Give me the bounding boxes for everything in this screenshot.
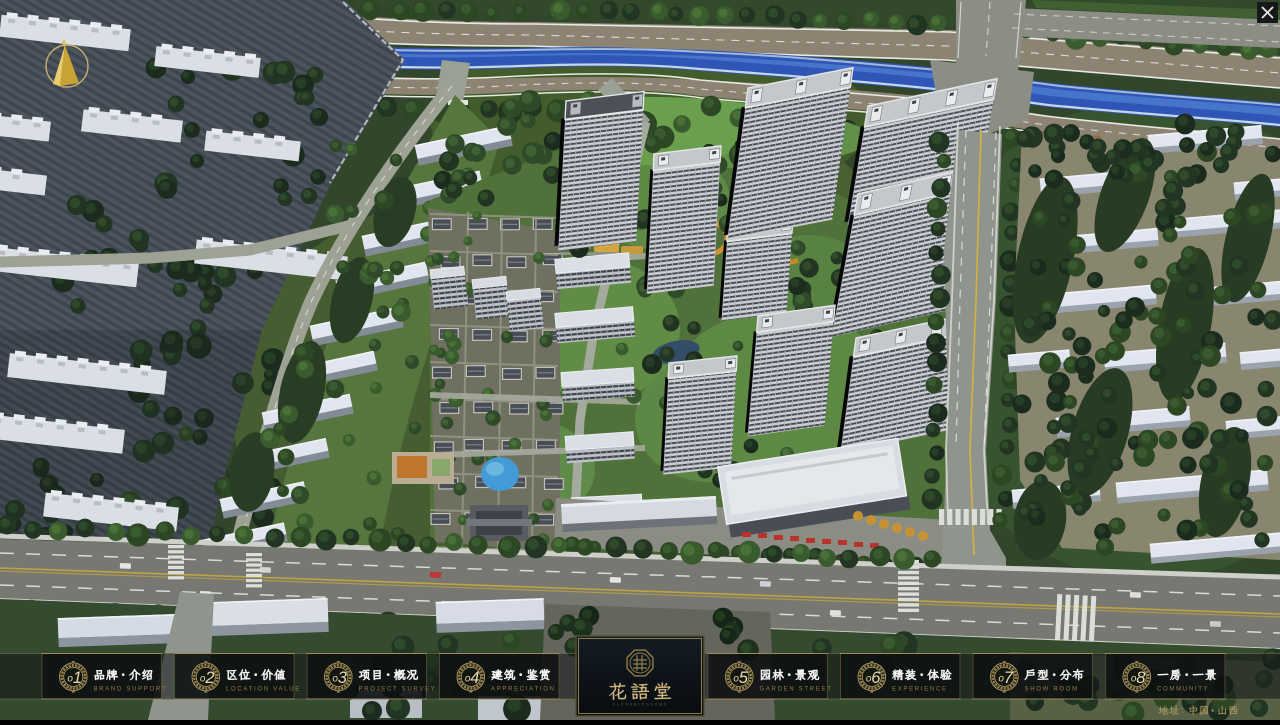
svg-text:2: 2 xyxy=(204,669,214,687)
svg-text:F L O R A B L O S S O M S: F L O R A B L O S S O M S xyxy=(613,703,667,707)
svg-text:BRAND SUPPORT: BRAND SUPPORT xyxy=(94,686,168,692)
svg-text:3: 3 xyxy=(338,669,348,687)
svg-text:COMMUNITY: COMMUNITY xyxy=(1157,686,1209,692)
svg-text:APPRECIATION: APPRECIATION xyxy=(491,686,556,692)
svg-text:4: 4 xyxy=(470,669,479,687)
svg-text:GARDEN STREET: GARDEN STREET xyxy=(760,686,833,692)
svg-text:6: 6 xyxy=(871,669,881,687)
svg-text:SHOW ROOM: SHOW ROOM xyxy=(1025,686,1079,692)
svg-text:1: 1 xyxy=(73,669,82,687)
svg-text:LOCATION VALUE: LOCATION VALUE xyxy=(226,686,301,692)
svg-text:5: 5 xyxy=(739,669,749,687)
svg-text:8: 8 xyxy=(1136,669,1146,687)
svg-text:EXPERIENCE: EXPERIENCE xyxy=(892,686,948,692)
svg-text::: : xyxy=(1181,705,1184,715)
svg-text:PROJECT SURVEY: PROJECT SURVEY xyxy=(359,686,437,692)
svg-text:7: 7 xyxy=(1004,669,1014,687)
